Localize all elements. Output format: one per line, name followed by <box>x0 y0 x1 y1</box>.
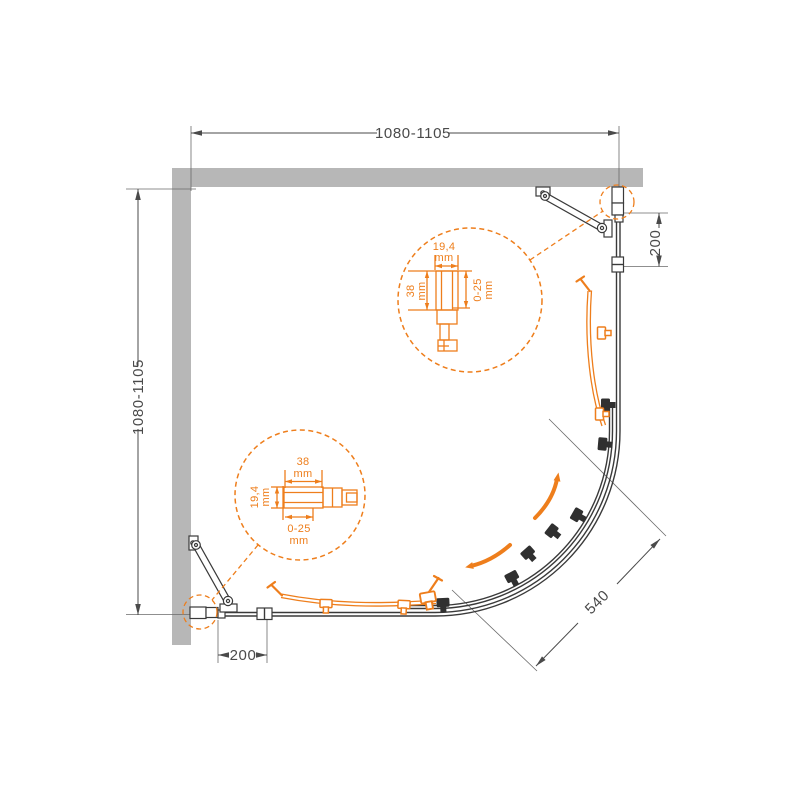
diagonal-dimension: 540 <box>452 419 666 671</box>
track-roller <box>521 546 539 564</box>
detail-top-width-unit: mm <box>435 252 454 264</box>
door-roller <box>320 599 332 613</box>
top-wall <box>172 168 643 187</box>
detail-references <box>183 185 634 629</box>
detail-callout-bottom: 38 mm 19,4 mm 0-25 mm <box>235 430 365 560</box>
track-roller <box>570 508 588 525</box>
door-handle <box>272 585 283 596</box>
leader-line-bottom <box>212 545 258 600</box>
door-roller <box>420 591 438 610</box>
diagonal-label: 540 <box>582 587 613 618</box>
detail-callout-top: 19,4 mm 38 mm 0-25 mm <box>398 228 542 372</box>
fixed-glass-panels <box>190 187 624 620</box>
detail-bottom-width-unit: mm <box>294 468 313 480</box>
left-height-label: 1080-1105 <box>130 359 147 435</box>
door-direction-arrow-down <box>465 545 510 569</box>
detail-bottom-width-value: 38 <box>297 456 310 468</box>
side-wall <box>172 168 191 645</box>
door-direction-arrows <box>465 473 560 569</box>
walls <box>172 168 643 645</box>
detail-top-range-unit: mm <box>483 281 495 300</box>
bottom-offset-label: 200 <box>230 647 257 664</box>
track-roller <box>505 570 522 588</box>
track-roller <box>598 438 612 451</box>
curved-track <box>435 431 620 616</box>
door-handle <box>581 279 590 291</box>
top-width-label: 1080-1105 <box>375 125 451 142</box>
detail-top-height-unit: mm <box>416 282 428 301</box>
door-direction-arrow-up <box>535 473 560 519</box>
track-roller <box>545 524 563 542</box>
track-roller <box>437 598 450 612</box>
right-wall-profile <box>612 187 624 272</box>
detail-bottom-range-unit: mm <box>290 535 309 547</box>
right-offset-label: 200 <box>647 230 664 257</box>
detail-bottom-range-value: 0-25 <box>287 523 310 535</box>
shower-enclosure-technical-drawing: 1080-1105 1080-1105 200 200 <box>0 0 800 800</box>
bottom-offset-dimension: 200 <box>218 620 267 664</box>
right-offset-dimension: 200 <box>624 213 668 267</box>
door-roller <box>598 327 612 339</box>
detail-bottom-height-unit: mm <box>260 488 272 507</box>
